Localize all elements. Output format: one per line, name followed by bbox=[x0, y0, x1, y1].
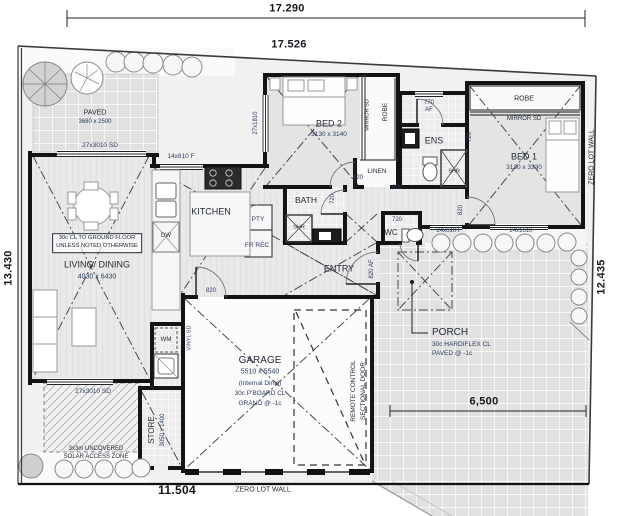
bath-shower-label: SHR bbox=[293, 225, 305, 231]
bed2-size: 3130 x 3140 bbox=[311, 132, 347, 139]
door-820-bed2-label: 820 bbox=[353, 175, 363, 181]
tree-icon bbox=[19, 454, 43, 478]
floor-plan-drawing bbox=[0, 0, 628, 516]
garage-door-label-line2: SECTIONAL DOOR bbox=[361, 362, 368, 420]
ens-window-label: 770 bbox=[424, 100, 434, 106]
door-820-hall-label: 820 bbox=[392, 185, 402, 191]
cooktop-icon bbox=[205, 167, 241, 189]
door-820-laundry-label: 820 bbox=[206, 288, 216, 294]
bed1-window-label: 24x1610 bbox=[509, 228, 532, 234]
entry-label: ENTRY bbox=[324, 265, 354, 274]
solar-zone-line2: SOLAR ACCESS ZONE bbox=[64, 454, 129, 460]
door-720-bath-label: 720 bbox=[330, 194, 336, 204]
pantry-label: PTY bbox=[252, 217, 265, 224]
living-label: LIVING/ DINING bbox=[64, 261, 130, 270]
ceiling-note-line1: 30c CL TO GROUND FLOOR bbox=[56, 235, 138, 243]
living-size: 4030 x 6430 bbox=[78, 274, 117, 281]
mirror-sd-bed2-label: MIRROR SD bbox=[365, 99, 371, 130]
robe-bed1-label: ROBE bbox=[514, 96, 534, 103]
robe-bed2-label: ROBE bbox=[383, 103, 390, 121]
island-bench bbox=[190, 192, 250, 256]
porch-finish-note: PAVED @ -1c bbox=[432, 351, 472, 358]
ceiling-note-line2: UNLESS NOTED OTHERWISE bbox=[56, 243, 138, 251]
garage-finish-note: GRANO @ -1c bbox=[238, 401, 281, 408]
dim-yard-width: 6,500 bbox=[469, 397, 498, 408]
dim-bottom: 11.504 bbox=[158, 484, 196, 496]
mirror-sd-bed1-label: MIRROR SD bbox=[507, 116, 541, 122]
dim-left: 13.430 bbox=[4, 250, 15, 285]
porch-label: PORCH bbox=[432, 328, 468, 338]
bed2-label: BED 2 bbox=[316, 120, 342, 129]
store-label: STORE bbox=[148, 416, 156, 443]
zero-lot-wall-right: ZERO LOT WALL bbox=[589, 129, 596, 185]
wc-label: WC bbox=[384, 229, 397, 237]
wc-window-label: 24x610 F bbox=[436, 228, 461, 234]
kitchen-window-label: 14x810 F bbox=[167, 154, 194, 161]
living-bottom-window-label: 27x3010 SD bbox=[75, 389, 111, 396]
porch-ceiling-note: 30c HARDIFLEX CL bbox=[432, 342, 491, 349]
dim-top-outer: 17.290 bbox=[269, 4, 304, 15]
bed1-size: 3130 x 3330 bbox=[506, 165, 542, 172]
kitchen-label: KITCHEN bbox=[191, 208, 231, 217]
ens-label: ENS bbox=[425, 137, 444, 146]
sofa bbox=[33, 290, 57, 372]
coffee-table bbox=[72, 308, 96, 346]
courtyard-size: 3680 x 2500 bbox=[78, 119, 111, 125]
dim-right: 12.435 bbox=[597, 259, 608, 294]
store-size: 3050 x 1400 bbox=[160, 413, 166, 446]
entry-door-label: 820 AF bbox=[369, 259, 375, 278]
living-top-window-label: 27x3010 SD bbox=[82, 143, 118, 150]
garage-dims-note: (Internal Dims) bbox=[239, 381, 282, 388]
door-720-ens-label: 720 bbox=[467, 132, 473, 142]
courtyard-label: PAVED bbox=[84, 110, 107, 117]
door-720-wc-label: 720 bbox=[392, 217, 402, 223]
laundry-slider-label: VINYL SD bbox=[187, 326, 193, 351]
bath-label: BATH bbox=[295, 196, 317, 205]
linen-label: LINEN bbox=[367, 169, 386, 176]
door-820-bed1-label: 820 bbox=[458, 205, 464, 215]
garage-label: GARAGE bbox=[239, 356, 282, 366]
floor-plan: 17.290 17.526 13.430 12.435 11.504 6,500… bbox=[0, 0, 628, 516]
garage-door-label-line1: REMOTE CONTROL bbox=[351, 360, 358, 421]
ceiling-note: 30c CL TO GROUND FLOOR UNLESS NOTED OTHE… bbox=[52, 233, 142, 253]
zero-lot-wall-bottom: ZERO LOT WALL bbox=[235, 487, 291, 494]
dishwasher-label: DW bbox=[161, 233, 171, 239]
sink-icon bbox=[156, 183, 176, 199]
ens-shower-label: SHR bbox=[448, 169, 460, 175]
ens-window-type-label: AF bbox=[425, 107, 433, 113]
bed1-label: BED 1 bbox=[511, 153, 537, 162]
garage-size: 5510 x 5540 bbox=[241, 369, 280, 376]
washing-machine-label: WM bbox=[161, 337, 172, 343]
dim-top-inner: 17.526 bbox=[271, 40, 306, 51]
solar-zone-line1: 3x3m UNCOVERED bbox=[69, 446, 124, 452]
dining-table bbox=[74, 187, 112, 225]
garage-ceiling-note: 30c P'BOARD CL bbox=[234, 391, 285, 398]
bed2-window-label: 27x1810 bbox=[253, 111, 259, 134]
fridge-recess-label: FR REC bbox=[245, 243, 269, 250]
